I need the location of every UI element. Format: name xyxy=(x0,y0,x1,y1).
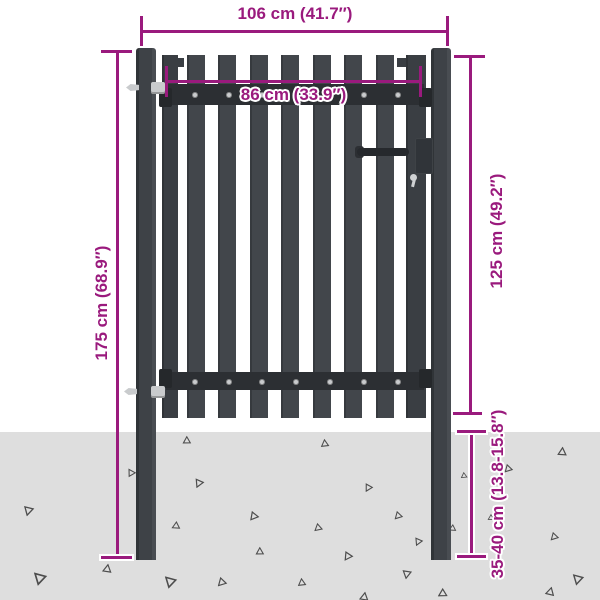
gate-stile xyxy=(162,55,178,418)
rail-bracket xyxy=(419,369,432,388)
gate-slat xyxy=(376,55,394,418)
dim-tick xyxy=(101,556,132,559)
dim-total-height-label: 175 cm (68.9″) xyxy=(91,173,113,433)
left-post xyxy=(136,48,156,560)
dim-tick xyxy=(453,412,482,415)
dim-line xyxy=(470,432,473,558)
frame-notch xyxy=(174,58,184,67)
ground xyxy=(0,432,600,600)
rivet-icon xyxy=(259,379,265,385)
gate-slat xyxy=(250,55,268,418)
product-diagram: 106 cm (41.7″) 86 cm (33.9″) 175 cm (68.… xyxy=(0,0,600,600)
dim-total-width-label: 106 cm (41.7″) xyxy=(141,3,449,25)
gate-slat xyxy=(344,55,362,418)
handle-bar xyxy=(357,148,409,156)
top-hinge-icon xyxy=(151,82,165,94)
hinge-screw-icon xyxy=(126,84,139,91)
lock-body xyxy=(415,138,433,174)
rivet-icon xyxy=(327,379,333,385)
dim-line xyxy=(141,30,449,33)
dim-tick xyxy=(457,555,486,558)
dim-tick xyxy=(446,16,449,46)
gate-slat xyxy=(313,55,331,418)
dim-line xyxy=(116,52,119,558)
bottom-hinge-icon xyxy=(151,386,165,398)
dim-gate-height-label: 125 cm (49.2″) xyxy=(486,111,508,351)
dim-tick xyxy=(101,50,132,53)
rivet-icon xyxy=(192,379,198,385)
hinge-screw-icon xyxy=(124,388,137,395)
right-post xyxy=(431,48,451,560)
rivet-icon xyxy=(395,379,401,385)
rivet-icon xyxy=(226,379,232,385)
dim-line xyxy=(167,80,420,83)
gravel-triangle-icon xyxy=(255,546,265,556)
dim-tick xyxy=(457,430,486,433)
gate-slat xyxy=(187,55,205,418)
dim-ground-depth-label: 35-40 cm (13.8-15.8″) xyxy=(487,369,509,600)
dim-tick xyxy=(454,55,485,58)
gate-stile xyxy=(406,55,426,418)
rivet-icon xyxy=(293,379,299,385)
gate-slat xyxy=(281,55,299,418)
gravel-triangle-icon xyxy=(321,439,331,449)
gravel-triangle-icon xyxy=(182,435,192,445)
gate-slat xyxy=(218,55,236,418)
rivet-icon xyxy=(361,379,367,385)
gravel-triangle-icon xyxy=(298,578,308,588)
dim-gate-width-label: 86 cm (33.9″) xyxy=(167,84,420,106)
dim-tick xyxy=(140,16,143,46)
frame-notch xyxy=(397,58,406,67)
dim-line xyxy=(469,57,472,415)
